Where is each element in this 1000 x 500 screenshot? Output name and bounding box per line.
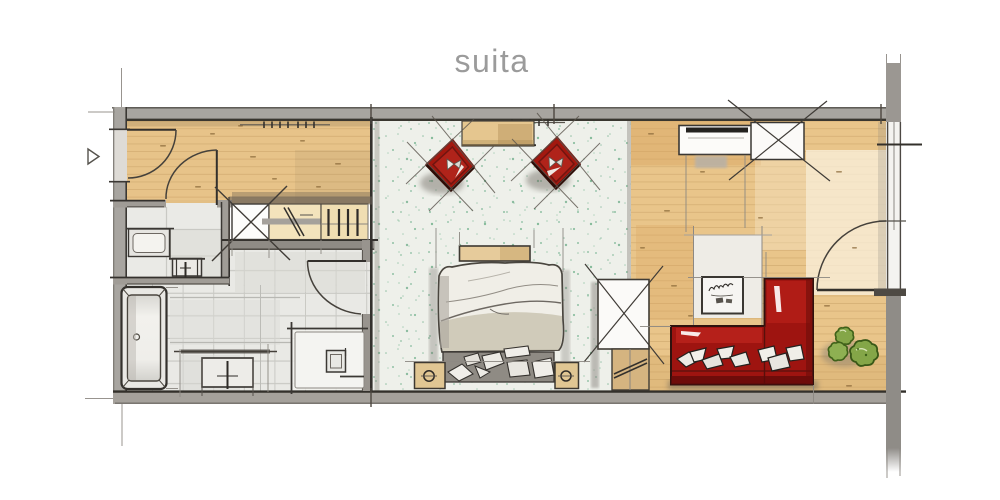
svg-text:suita: suita bbox=[454, 43, 529, 79]
